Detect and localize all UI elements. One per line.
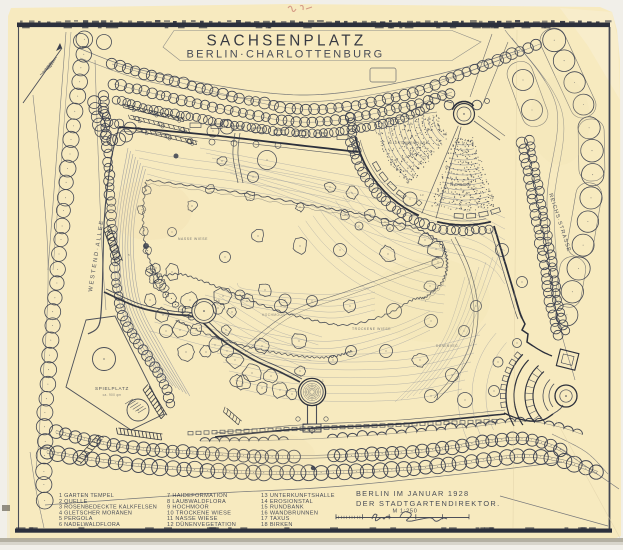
svg-text:NASSE WIESE: NASSE WIESE [178, 237, 208, 241]
svg-text:12 DÜNENVEGETATION: 12 DÜNENVEGETATION [167, 521, 236, 528]
svg-text:1: 1 [322, 379, 324, 383]
svg-text:15: 15 [216, 299, 220, 303]
svg-text:18 BIRKEN: 18 BIRKEN [261, 522, 293, 528]
svg-text:SPIELPLATZ: SPIELPLATZ [95, 386, 129, 391]
svg-text:HOCHMOOR: HOCHMOOR [262, 313, 285, 317]
svg-text:ca. 900 qm: ca. 900 qm [103, 393, 122, 397]
svg-text:DÜNENVEG.: DÜNENVEG. [436, 344, 459, 348]
svg-text:DER STADTGARTENDIREKTOR.: DER STADTGARTENDIREKTOR. [356, 499, 501, 508]
svg-text:BERLIN·CHARLOTTENBURG: BERLIN·CHARLOTTENBURG [186, 49, 384, 61]
svg-text:13: 13 [420, 193, 424, 197]
svg-text:5: 5 [128, 253, 130, 257]
svg-text:SACHSENPLATZ: SACHSENPLATZ [206, 32, 366, 49]
svg-text:2: 2 [199, 326, 201, 330]
svg-text:WILDSTAUDENFLORA: WILDSTAUDENFLORA [388, 141, 428, 145]
svg-text:ROSEN: ROSEN [450, 182, 472, 187]
svg-text:BERLIN IM JANUAR 1928: BERLIN IM JANUAR 1928 [356, 489, 469, 498]
svg-text:6 NADELWALDFLORA: 6 NADELWALDFLORA [59, 522, 120, 528]
